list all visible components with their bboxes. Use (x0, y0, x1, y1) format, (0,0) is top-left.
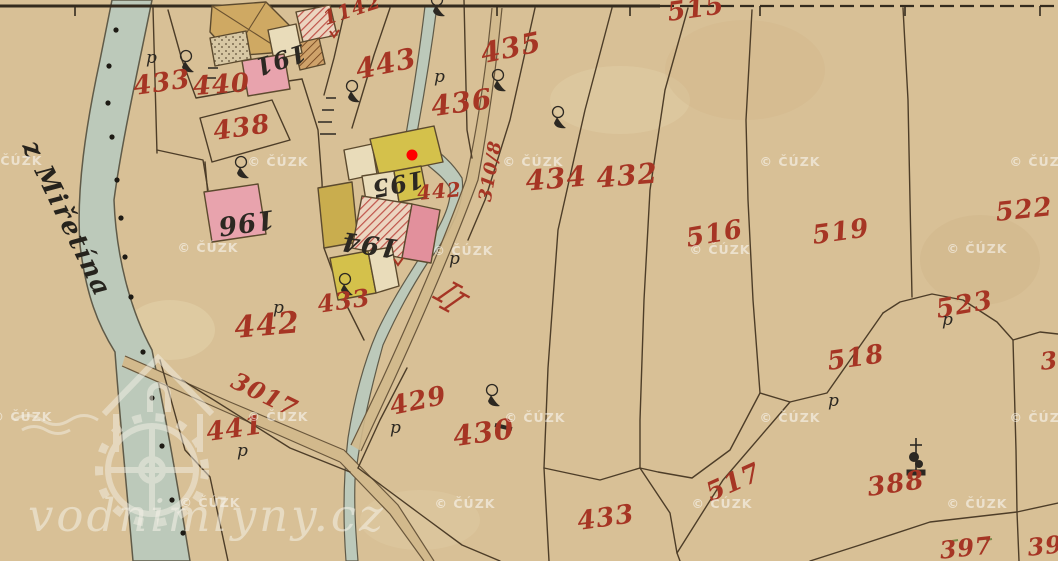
river-dot (105, 100, 110, 105)
map-canvas[interactable]: 4334404381142443435436515434432310/85165… (0, 0, 1058, 561)
site-watermark: vodnimlyny.cz (28, 489, 386, 542)
cuzk-watermark: © ČÚZK (760, 410, 821, 425)
river-dot (118, 215, 123, 220)
river-dot (140, 349, 145, 354)
cuzk-watermark: © ČÚZK (505, 410, 566, 425)
cuzk-watermark: © ČÚZK (248, 409, 309, 424)
cuzk-watermark: © ČÚZK (435, 496, 496, 511)
cuzk-watermark: © ČÚZK (1010, 410, 1058, 425)
cuzk-watermark: © ČÚZK (433, 243, 494, 258)
river-dot (109, 134, 114, 139)
pasture-mark: p (146, 48, 157, 68)
parcel-label: 442 (233, 305, 301, 346)
pasture-mark: p (273, 298, 284, 318)
pasture-mark: p (237, 441, 248, 461)
pasture-mark: p (390, 418, 401, 438)
river-dot (128, 294, 133, 299)
cuzk-watermark: © ČÚZK (692, 496, 753, 511)
parcel-label: 397 (938, 530, 994, 561)
parcel-label: 440 (192, 68, 251, 102)
cuzk-watermark: © ČÚZK (947, 241, 1008, 256)
pasture-mark: p (828, 391, 839, 411)
pasture-mark: p (942, 310, 953, 330)
parcel-label: 3 (1039, 345, 1058, 376)
parcel-label: 432 (595, 156, 659, 194)
river-dot (159, 443, 164, 448)
cuzk-watermark: © ČÚZK (248, 154, 309, 169)
cuzk-watermark: © ČÚZK (947, 496, 1008, 511)
pasture-mark: p (434, 67, 445, 87)
cuzk-watermark: © ČÚZK (503, 154, 564, 169)
target-marker (407, 150, 418, 161)
parcel-label: 39 (1026, 529, 1058, 561)
river-dot (122, 254, 127, 259)
cuzk-watermark: © ČÚZK (0, 153, 43, 168)
river-dot (113, 27, 118, 32)
river-dot (114, 177, 119, 182)
river-dot (106, 63, 111, 68)
cuzk-watermark: © ČÚZK (178, 240, 239, 255)
parcel-label: 522 (994, 192, 1054, 228)
cadastral-map: 4334404381142443435436515434432310/85165… (0, 0, 1058, 561)
cuzk-watermark: © ČÚZK (1010, 154, 1058, 169)
cuzk-watermark: © ČÚZK (760, 154, 821, 169)
cuzk-watermark: © ČÚZK (690, 242, 751, 257)
